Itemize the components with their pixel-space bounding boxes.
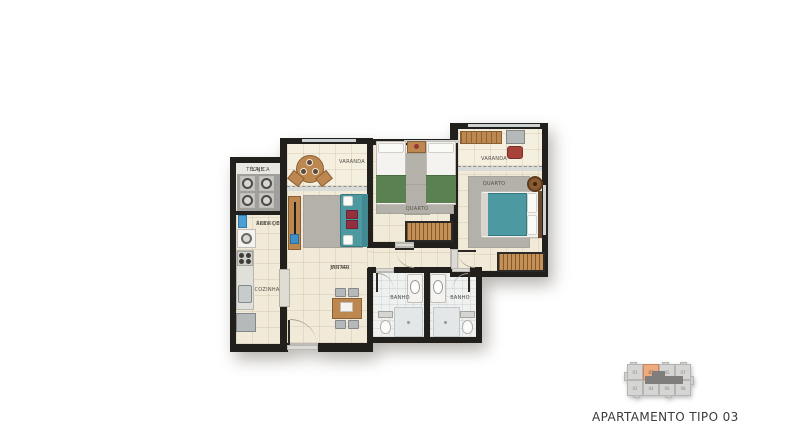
keyplan-core — [652, 371, 665, 381]
quarto-1-door-sill — [395, 243, 414, 247]
label-banho-2: BANHO — [438, 294, 482, 301]
ac-condenser-fan-icon — [242, 195, 253, 206]
glass-door-varanda-direita — [458, 166, 542, 171]
kitchen-sink — [238, 285, 252, 303]
ac-condenser-fan-icon — [261, 195, 272, 206]
label-quarto-2: QUARTO — [478, 180, 510, 188]
burner-icon — [246, 259, 251, 264]
wall — [368, 337, 482, 343]
quarto-2-door-sill — [451, 249, 458, 269]
decor-vase — [290, 234, 299, 244]
bed-headboard — [538, 191, 542, 238]
entry-door-sill — [287, 345, 318, 350]
window — [302, 139, 356, 142]
sofa-backrest — [362, 194, 368, 247]
plate-icon — [306, 159, 313, 166]
label-banho-1: BANHO — [378, 294, 422, 301]
page-title: APARTAMENTO TIPO 03 — [592, 410, 739, 424]
sofa-pillow — [343, 235, 353, 245]
lamp-icon — [414, 144, 419, 149]
wardrobe — [497, 252, 545, 272]
dining-chair — [348, 320, 359, 329]
label-estar-jantar: ESTAR/ JANTAR — [320, 261, 360, 275]
wall — [368, 267, 376, 273]
bed-fold — [481, 193, 488, 236]
banho-2-door-sill — [452, 268, 470, 272]
sofa-cushion-red — [346, 210, 358, 219]
burner-icon — [246, 253, 251, 258]
hall-opening — [367, 248, 373, 268]
wall — [372, 242, 395, 248]
sofa-cushion-red — [346, 220, 358, 229]
dining-chair — [335, 320, 346, 329]
wall — [318, 343, 373, 352]
toilet-tank — [460, 311, 475, 318]
bed-blanket-green — [376, 175, 406, 203]
banho-2-door-leaf — [468, 273, 470, 292]
burner-icon — [239, 253, 244, 258]
toilet-bowl-icon — [380, 320, 391, 334]
shower-drain-icon — [444, 321, 447, 324]
wardrobe — [405, 221, 453, 242]
dining-chair — [335, 288, 346, 297]
sofa-pillow — [343, 196, 353, 206]
desk — [506, 130, 525, 144]
wall — [280, 138, 287, 350]
label-laje-tecnica: LAJE TÉCNICA — [236, 163, 280, 176]
label-varanda-esquerda: VARANDA — [332, 158, 372, 166]
bed-blanket-green — [426, 175, 456, 203]
keyplan-unit-02: 02 — [627, 380, 643, 396]
tv-icon — [294, 202, 296, 234]
banho-1-door-sill — [376, 268, 394, 272]
wall — [476, 273, 482, 337]
bed-pillow — [527, 215, 537, 235]
dining-tray — [340, 302, 353, 312]
wall — [367, 268, 373, 343]
window — [468, 124, 540, 127]
label-area-servico: ÁREA DE SERVIÇO — [255, 217, 281, 231]
glass-door-varanda-esquerda — [287, 186, 367, 191]
laundry-tank — [238, 215, 247, 228]
fridge — [236, 313, 256, 332]
ac-condenser-fan-icon — [242, 178, 253, 189]
bed-pillow — [527, 193, 537, 213]
building-key-plan: 01 03 05 07 02 04 06 08 — [627, 364, 691, 396]
label-cozinha: COZINHA — [252, 286, 282, 294]
wall — [394, 267, 452, 273]
keyplan-unit-01: 01 — [627, 364, 643, 380]
shower-drain-icon — [407, 321, 410, 324]
label-varanda-direita: VARANDA — [476, 155, 512, 163]
washing-machine-door-icon — [241, 233, 252, 244]
floor-plan: LAJE TÉCNICA ÁREA DE SERVIÇO COZINHA EST… — [228, 122, 550, 354]
window — [543, 185, 546, 235]
burner-icon — [239, 259, 244, 264]
sink-basin-icon — [433, 280, 443, 294]
plate-icon — [312, 168, 319, 175]
bed-pillow — [428, 143, 454, 153]
bed-blanket-teal — [487, 193, 527, 236]
fan-center-icon — [533, 182, 537, 186]
bed-pillow — [378, 143, 404, 153]
plate-icon — [300, 168, 307, 175]
ac-condenser-fan-icon — [261, 178, 272, 189]
label-quarto-1: QUARTO — [400, 205, 434, 213]
dining-chair — [348, 288, 359, 297]
toilet-bowl-icon — [462, 320, 473, 334]
page: { "title": "APARTAMENTO TIPO 03", "plan"… — [0, 0, 800, 440]
toilet-tank — [378, 311, 393, 318]
console-shelf — [460, 131, 502, 144]
sink-basin-icon — [410, 280, 420, 294]
